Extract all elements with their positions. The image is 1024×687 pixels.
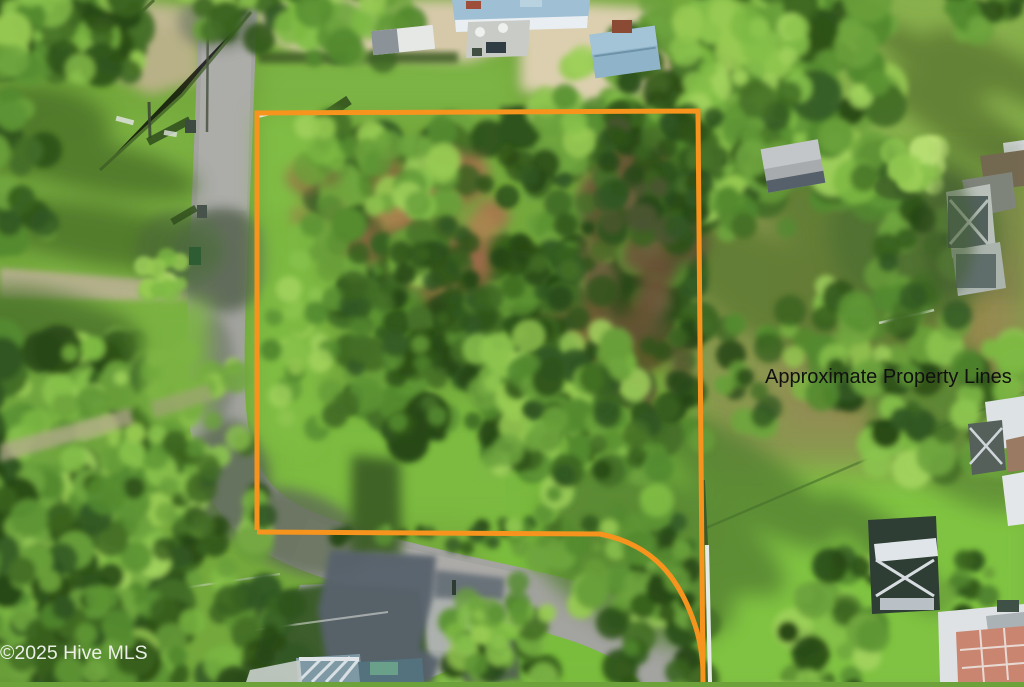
- svg-text:©2025 Hive MLS: ©2025 Hive MLS: [0, 642, 148, 664]
- svg-text:Approximate Property Lines: Approximate Property Lines: [765, 366, 1012, 388]
